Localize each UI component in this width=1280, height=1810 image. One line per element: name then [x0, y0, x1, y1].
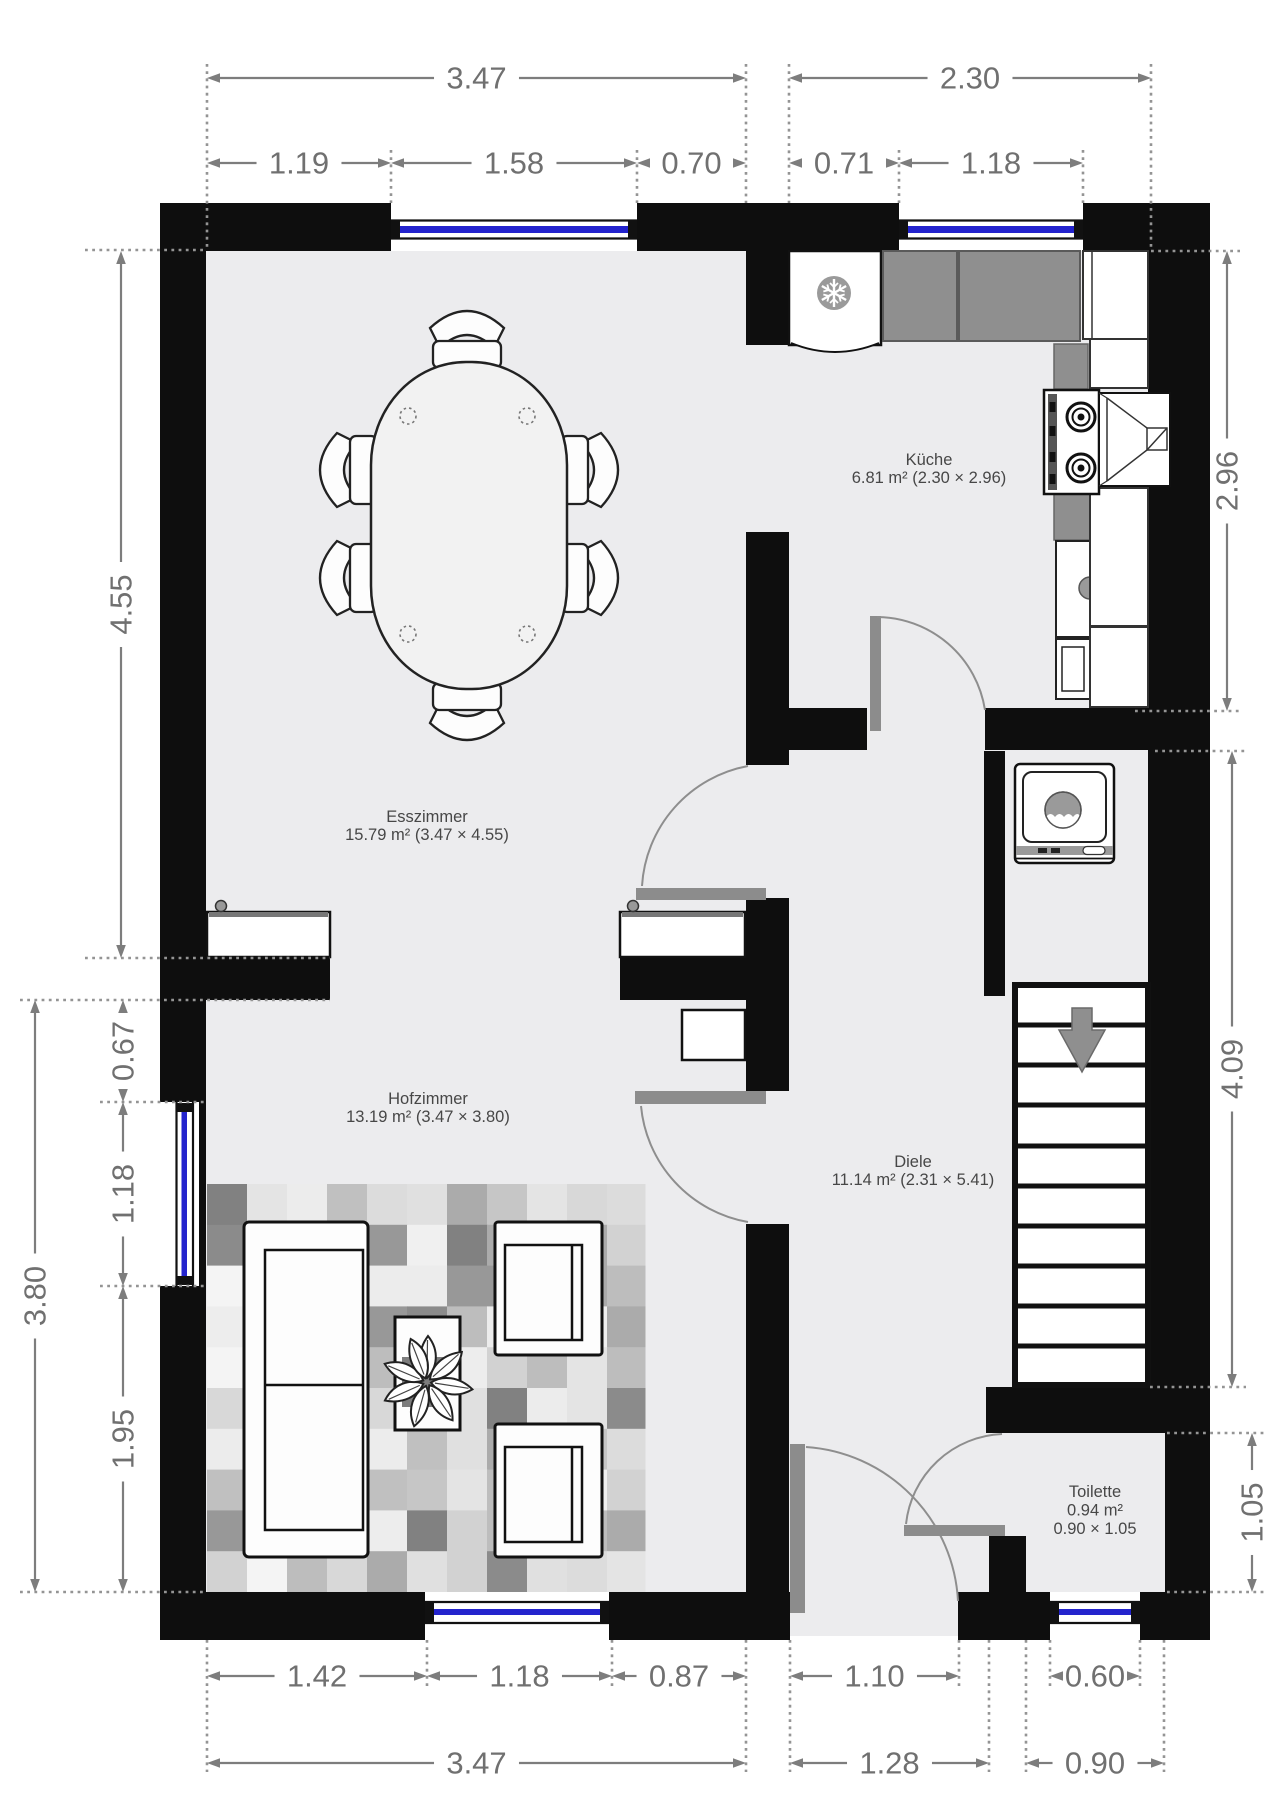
svg-text:Esszimmer: Esszimmer	[386, 808, 468, 826]
svg-text:0.94 m²: 0.94 m²	[1067, 1502, 1123, 1520]
svg-text:1.10: 1.10	[844, 1659, 904, 1694]
svg-text:1.19: 1.19	[269, 146, 329, 181]
svg-text:Küche: Küche	[906, 451, 953, 469]
svg-text:11.14 m² (2.31 × 5.41): 11.14 m² (2.31 × 5.41)	[832, 1171, 995, 1189]
svg-text:1.42: 1.42	[287, 1659, 347, 1694]
svg-text:Diele: Diele	[894, 1153, 932, 1171]
svg-text:Hofzimmer: Hofzimmer	[388, 1090, 468, 1108]
svg-text:0.67: 0.67	[106, 1021, 141, 1081]
svg-text:3.80: 3.80	[18, 1266, 53, 1326]
svg-text:Toilette: Toilette	[1069, 1483, 1121, 1501]
svg-text:13.19 m² (3.47 × 3.80): 13.19 m² (3.47 × 3.80)	[346, 1108, 510, 1126]
svg-text:2.30: 2.30	[940, 61, 1000, 96]
svg-text:1.18: 1.18	[961, 146, 1021, 181]
svg-text:1.05: 1.05	[1235, 1482, 1270, 1542]
svg-text:4.55: 4.55	[104, 574, 139, 634]
svg-text:0.70: 0.70	[661, 146, 721, 181]
svg-text:4.09: 4.09	[1215, 1039, 1250, 1099]
svg-text:1.95: 1.95	[106, 1409, 141, 1469]
svg-text:3.47: 3.47	[446, 61, 506, 96]
svg-text:3.47: 3.47	[446, 1746, 506, 1781]
svg-text:0.87: 0.87	[649, 1659, 709, 1694]
svg-text:0.71: 0.71	[814, 146, 874, 181]
svg-text:0.90 × 1.05: 0.90 × 1.05	[1053, 1520, 1136, 1538]
svg-text:0.90: 0.90	[1065, 1746, 1125, 1781]
svg-text:15.79 m² (3.47 × 4.55): 15.79 m² (3.47 × 4.55)	[345, 826, 509, 844]
svg-text:0.60: 0.60	[1065, 1659, 1125, 1694]
svg-text:6.81 m² (2.30 × 2.96): 6.81 m² (2.30 × 2.96)	[852, 469, 1007, 487]
svg-text:1.28: 1.28	[859, 1746, 919, 1781]
svg-text:2.96: 2.96	[1210, 451, 1245, 511]
svg-text:1.58: 1.58	[484, 146, 544, 181]
svg-text:1.18: 1.18	[106, 1164, 141, 1224]
svg-text:1.18: 1.18	[489, 1659, 549, 1694]
